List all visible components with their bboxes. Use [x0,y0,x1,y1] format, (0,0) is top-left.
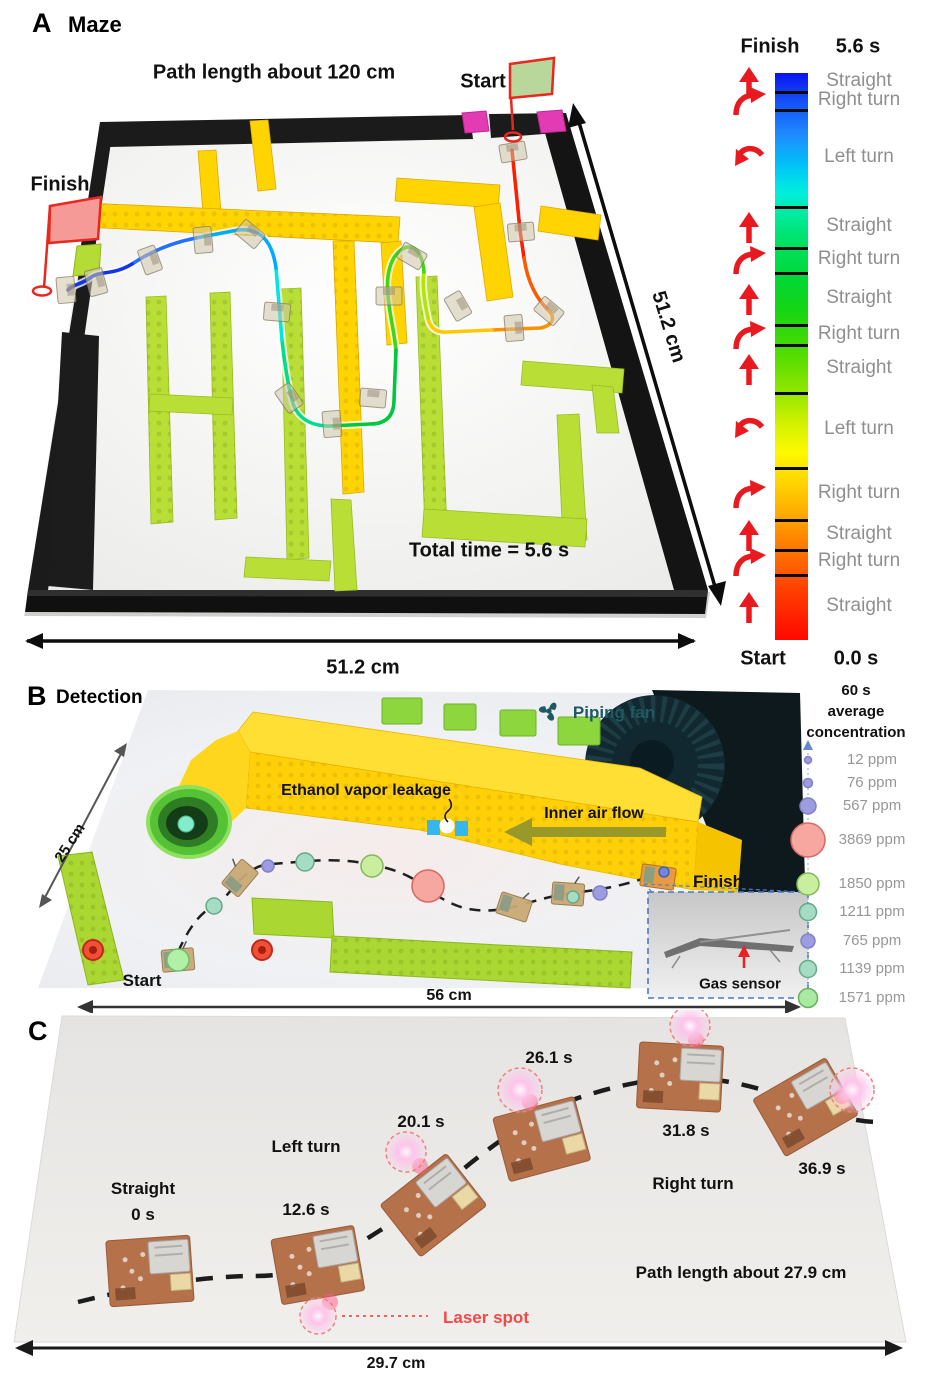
straight-arrow-icon [730,283,768,322]
annotation-path-length: Path length about 27.9 cm [636,1263,847,1283]
annotation-time-36-9s: 36.9 s [798,1159,845,1179]
annotation-air-flow: Inner air flow [544,805,644,823]
finish-robot [640,864,677,891]
concentration-marker [799,989,818,1008]
panel-b-tag: B [27,681,47,712]
maneuver-label: Straight [800,357,918,379]
annotation-start: Start [123,971,162,991]
annotation-width-dim: 29.7 cm [367,1355,426,1373]
legend-start-time: 0.0 s [834,648,878,671]
annotation-width-dim: 56 cm [426,987,471,1005]
straight-arrow-icon [730,353,768,392]
right-arrow-icon [730,546,768,583]
annotation-ethanol-leak: Ethanol vapor leakage [281,782,451,800]
colorbar-tick [775,574,808,577]
concentration-value: 1139 ppm [826,960,918,977]
concentration-value: 12 ppm [826,751,918,768]
concentration-value: 567 ppm [826,797,918,814]
dimension-arrow-bottom [25,633,696,649]
colorbar-tick [775,467,808,470]
panel-a-title: Maze [68,12,122,38]
annotation-gas-sensor: Gas sensor [699,976,781,993]
concentration-marker [791,823,825,857]
left-arrow-icon [730,142,768,179]
panel-c-tag: C [28,1016,48,1047]
panel-a-tag: A [32,8,52,39]
concentration-value: 76 ppm [826,774,918,791]
annotation-piping-fan: Piping fan [573,703,655,723]
right-arrow-icon [730,85,768,122]
concentration-value: 1211 ppm [826,903,918,920]
legend-start-label: Start [740,648,786,671]
maze-board [28,113,708,590]
concentration-value: 765 ppm [826,932,918,949]
straight-arrow-icon [730,591,768,630]
concentration-marker [805,757,812,764]
annotation-maneuver-right-turn: Right turn [652,1174,733,1194]
maneuver-label: Right turn [800,248,918,270]
left-arrow-icon [730,414,768,451]
right-arrow-icon [730,319,768,356]
concentration-marker [804,779,813,788]
maneuver-label: Straight [800,215,918,237]
colorbar-tick [775,519,808,522]
annotation-time-0s: 0 s [131,1205,155,1225]
annotation-laser-spot: Laser spot [443,1308,529,1328]
annotation-time-26-1s: 26.1 s [525,1048,572,1068]
colorbar-tick [775,392,808,395]
right-arrow-icon [730,478,768,515]
annotation-finish: Finish [693,872,743,892]
concentration-value: 1571 ppm [826,989,918,1006]
concentration-legend-title: concentration [800,724,912,741]
annotation-time-31-8s: 31.8 s [662,1121,709,1141]
colorbar-tick [775,272,808,275]
maneuver-label: Right turn [800,550,918,572]
right-arrow-icon [730,244,768,281]
maneuver-label: Straight [800,287,918,309]
concentration-legend-title: 60 s [800,682,912,699]
maneuver-label: Right turn [800,89,918,111]
annotation-path-length: Path length about 120 cm [153,62,395,85]
maneuver-label: Right turn [800,482,918,504]
annotation-time-20-1s: 20.1 s [397,1112,444,1132]
concentration-legend-title: average [800,703,912,720]
figure-canvas: A Maze B Detection C Finish 5.6 s Start … [0,0,941,1373]
colorbar-tick [775,206,808,209]
maneuver-label: Straight [800,595,918,617]
concentration-marker [800,904,817,921]
concentration-value: 3869 ppm [826,831,918,848]
panel-b-title: Detection [56,687,143,709]
maze-photo [0,0,730,678]
pipe-opening [148,787,230,857]
legend-finish-label: Finish [741,36,800,59]
maneuver-label: Left turn [800,146,918,168]
annotation-maneuver-straight: Straight [111,1179,175,1199]
annotation-time-12-6s: 12.6 s [282,1200,329,1220]
concentration-marker [801,934,815,948]
annotation-start: Start [460,71,506,94]
maneuver-label: Left turn [800,418,918,440]
annotation-width-dim: 51.2 cm [326,657,399,680]
annotation-total-time: Total time = 5.6 s [409,540,569,563]
concentration-value: 1850 ppm [826,875,918,892]
maneuver-label: Right turn [800,323,918,345]
concentration-marker [797,873,819,895]
annotation-maneuver-left-turn: Left turn [272,1137,341,1157]
maneuver-label: Straight [800,523,918,545]
legend-finish-time: 5.6 s [836,36,880,59]
concentration-marker [800,961,817,978]
concentration-marker [800,798,816,814]
annotation-finish: Finish [31,174,90,197]
